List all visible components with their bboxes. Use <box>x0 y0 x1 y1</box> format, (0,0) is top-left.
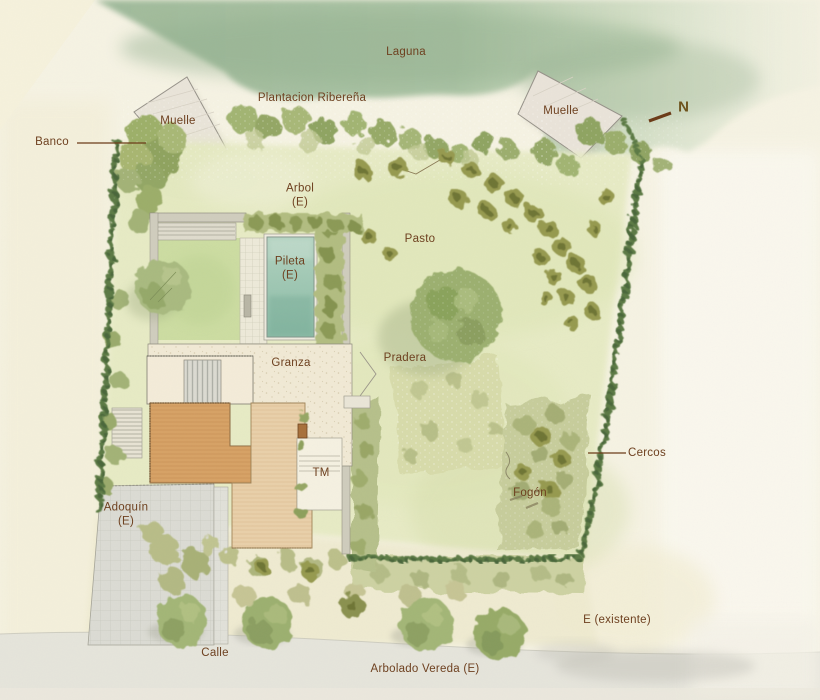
paper-grain <box>0 0 820 700</box>
site-plan-painting <box>0 0 820 700</box>
watercolor-site-plan: Laguna Plantacion Ribereña Muelle Muelle… <box>0 0 820 700</box>
